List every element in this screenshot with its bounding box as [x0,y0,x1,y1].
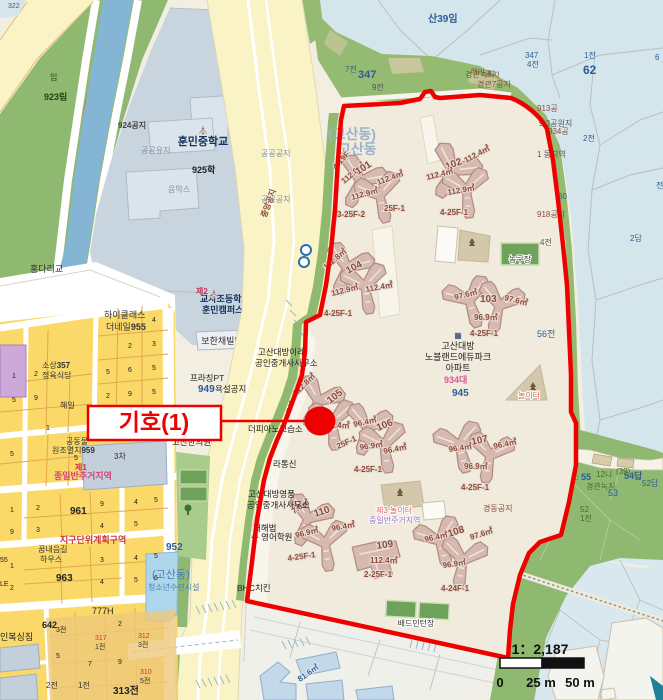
svg-text:3-25F-2: 3-25F-2 [337,210,366,219]
svg-text:963: 963 [56,573,73,584]
svg-text:4: 4 [152,317,156,324]
svg-text:642: 642 [42,620,57,630]
svg-text:2: 2 [106,393,110,400]
svg-text:1전: 1전 [78,680,90,690]
svg-text:소상357: 소상357 [42,360,71,370]
svg-text:4-25F-1: 4-25F-1 [440,208,469,217]
svg-text:더네일955: 더네일955 [106,322,146,332]
svg-text:공동물: 공동물 [66,437,88,446]
svg-text:라통신: 라통신 [273,459,296,469]
svg-text:공인중개사사무소: 공인중개사사무소 [255,358,318,368]
svg-text:2전: 2전 [46,680,58,690]
svg-text:3전: 3전 [138,640,148,649]
svg-text:4: 4 [134,555,138,562]
svg-text:923림: 923림 [44,91,67,102]
svg-text:952: 952 [166,542,183,553]
svg-text:공공공지: 공공공지 [261,195,290,204]
svg-text:945: 945 [452,388,469,399]
svg-text:2답: 2답 [630,233,642,243]
svg-text:5: 5 [10,451,14,458]
svg-text:2-25F-1: 2-25F-1 [364,570,393,579]
svg-text:2: 2 [34,371,38,378]
svg-text:103: 103 [480,294,497,305]
svg-text:6: 6 [154,575,158,582]
svg-text:중일반주거지역: 중일반주거지역 [369,515,421,525]
svg-text:정육식당: 정육식당 [42,370,72,380]
svg-text:9: 9 [128,391,132,398]
svg-text:공인중개사사무소: 공인중개사사무소 [247,500,310,510]
svg-text:54답: 54답 [624,470,643,481]
svg-text:9: 9 [34,395,38,402]
svg-text:놀이터: 놀이터 [518,390,540,400]
svg-text:310: 310 [140,669,152,676]
svg-text:임: 임 [50,73,57,82]
svg-text:5: 5 [154,553,158,560]
svg-text:96.9㎡: 96.9㎡ [464,461,488,471]
svg-text:기호(1): 기호(1) [119,409,189,435]
svg-text:62: 62 [583,63,597,77]
svg-text:원조멸치959: 원조멸치959 [52,445,95,455]
svg-text:3전: 3전 [56,625,66,634]
svg-text:4: 4 [100,579,104,586]
svg-text:9: 9 [118,659,122,666]
svg-text:6: 6 [128,367,132,374]
svg-text:53: 53 [608,488,618,498]
svg-text:7전: 7전 [345,64,357,74]
svg-text:인복싱짐: 인복싱짐 [0,632,33,642]
svg-text:52답: 52답 [642,478,659,488]
svg-text:0: 0 [496,675,503,690]
svg-text:2: 2 [36,505,40,512]
svg-text:55: 55 [581,472,591,482]
svg-text:훈민중학교: 훈민중학교 [178,134,229,148]
svg-text:25 m: 25 m [526,675,556,690]
svg-text:청소년수련시설: 청소년수련시설 [148,582,200,592]
svg-text:1: 1 [12,373,16,380]
svg-text:(고산동): (고산동) [328,126,376,142]
svg-text:훈민캠퍼스: 훈민캠퍼스 [202,304,244,315]
svg-text:9전: 9전 [372,82,384,92]
svg-text:5: 5 [12,397,16,404]
svg-text:12니: 12니 [596,469,612,479]
svg-text:더피아노교습소: 더피아노교습소 [248,424,303,434]
svg-text:4-25F-1: 4-25F-1 [470,329,499,338]
svg-text:1전: 1전 [580,513,592,523]
svg-text:2전: 2전 [583,133,595,143]
svg-text:2: 2 [10,585,14,592]
svg-text:2: 2 [128,343,132,350]
svg-text:3: 3 [36,527,40,534]
svg-text:347: 347 [525,51,539,60]
svg-text:⛪: ⛪ [209,289,219,299]
svg-text:⛪: ⛪ [198,125,208,135]
svg-text:2: 2 [118,621,122,628]
svg-text:지구단위계획구역: 지구단위계획구역 [60,534,126,545]
svg-text:25F-1: 25F-1 [384,204,405,213]
svg-text:전: 전 [656,180,663,190]
svg-text:5: 5 [152,365,156,372]
svg-text:5: 5 [56,653,60,660]
svg-text:3: 3 [152,341,156,348]
svg-text:프라칭PT: 프라칭PT [190,373,224,383]
svg-text:55: 55 [0,557,8,564]
svg-text:949: 949 [198,384,215,395]
svg-text:5: 5 [74,455,78,462]
svg-text:아파트: 아파트 [446,363,471,373]
svg-text:6: 6 [655,53,660,62]
svg-text:4-25F-1: 4-25F-1 [461,483,490,492]
svg-text:5: 5 [154,497,158,504]
svg-text:▦: ▦ [454,331,462,340]
svg-text:4: 4 [100,523,104,530]
svg-text:1전: 1전 [95,642,105,651]
svg-text:9: 9 [100,501,104,508]
svg-text:924공지: 924공지 [118,120,146,130]
svg-text:고산대방이레: 고산대방이레 [258,347,305,357]
svg-text:934대: 934대 [444,374,467,385]
svg-text:하우스: 하우스 [40,554,62,564]
svg-text:934공: 934공 [548,127,569,136]
svg-text:노블랜드에듀파크: 노블랜드에듀파크 [425,352,491,362]
svg-text:배드민턴장: 배드민턴장 [398,618,435,628]
svg-text:경동공지: 경동공지 [483,503,512,513]
svg-text:4-25F-1: 4-25F-1 [324,309,353,318]
svg-text:고산대방: 고산대방 [441,341,474,351]
svg-text:LE: LE [0,581,9,588]
svg-text:312: 312 [138,633,150,640]
svg-text:1전: 1전 [584,50,596,60]
svg-text:4전: 4전 [540,237,552,247]
svg-text:BHC치킨: BHC치킨 [237,583,271,593]
svg-text:4-25F-1: 4-25F-1 [354,465,383,474]
svg-text:913공: 913공 [537,104,558,113]
svg-text:313전: 313전 [113,684,139,697]
svg-text:고산대방영품: 고산대방영품 [248,489,295,499]
svg-text:3차: 3차 [114,452,126,461]
svg-text:112.4㎡: 112.4㎡ [370,555,398,565]
svg-text:4: 4 [134,499,138,506]
svg-text:50 m: 50 m [565,675,595,690]
svg-text:경관7공지: 경관7공지 [477,79,511,89]
svg-text:5: 5 [106,369,110,376]
svg-text:공공유지: 공공유지 [141,146,170,155]
svg-text:1: 1 [10,563,14,570]
svg-text:산39임: 산39임 [428,12,458,25]
svg-text:농구장: 농구장 [509,254,532,264]
svg-text:1: 1 [10,507,14,514]
svg-text:공공공지: 공공공지 [261,149,290,158]
svg-text:317: 317 [95,635,107,642]
svg-text:5: 5 [152,389,156,396]
svg-text:음악스: 음악스 [168,184,190,194]
svg-text:777H: 777H [92,606,114,616]
svg-text:52: 52 [580,505,589,514]
svg-text:925학: 925학 [192,164,216,175]
svg-text:9: 9 [10,529,14,536]
svg-text:4-24F-1: 4-24F-1 [441,584,470,593]
svg-text:5전: 5전 [140,676,150,685]
svg-text:961: 961 [70,506,87,517]
svg-text:56전: 56전 [537,329,555,339]
svg-text:홍다리교: 홍다리교 [30,263,63,274]
svg-text:꿈내음길: 꿈내음길 [38,545,67,554]
svg-text:종일반주거지역: 종일반주거지역 [54,470,112,481]
svg-text:96.9㎡: 96.9㎡ [474,312,498,322]
svg-text:1: 1 [46,425,50,432]
svg-text:해일: 해일 [60,400,75,410]
svg-text:5: 5 [134,521,138,528]
svg-text:7: 7 [88,661,92,668]
svg-text:욕설공지: 욕설공지 [215,384,246,394]
svg-text:제3 놀이터: 제3 놀이터 [376,505,412,515]
svg-text:1：2,187: 1：2,187 [512,641,569,657]
svg-text:347: 347 [358,69,376,81]
svg-text:5: 5 [134,577,138,584]
svg-text:322: 322 [8,3,20,10]
svg-text:4전: 4전 [527,59,539,69]
svg-text:3: 3 [100,557,104,564]
svg-text:하이클래스: 하이클래스 [104,310,145,320]
